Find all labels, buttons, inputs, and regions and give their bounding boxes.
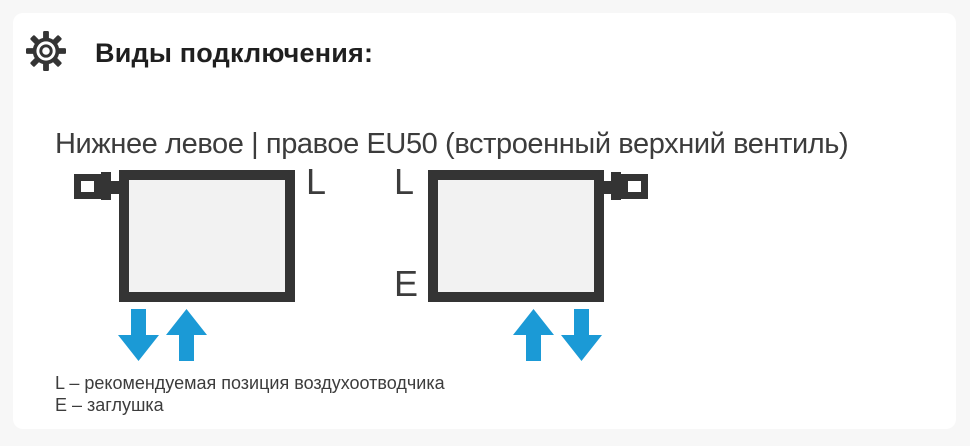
arrow-up-icon [513,309,554,361]
valve-cap [74,174,101,199]
valve-cap [621,174,648,199]
legend-line-air-vent: L – рекомендуемая позиция воздухоотводчи… [55,372,445,394]
legend: L – рекомендуемая позиция воздухоотводчи… [55,372,445,416]
plug-marker-right: E [394,266,418,302]
radiator-right [428,170,604,302]
legend-line-plug: E – заглушка [55,394,445,416]
air-vent-marker-right: L [394,164,414,200]
radiator-left [119,170,295,302]
valve-stem [611,172,621,200]
page-title: Виды подключения: [95,40,373,67]
gear-icon [26,30,66,72]
connection-subtitle: Нижнее левое | правое EU50 (встроенный в… [55,130,848,159]
valve-nipple [111,181,119,194]
arrow-down-icon [118,309,159,361]
air-vent-marker-left: L [306,164,326,200]
arrow-up-icon [166,309,207,361]
valve-stem [101,172,111,200]
arrow-down-icon [561,309,602,361]
connection-types-figure: Виды подключения: Нижнее левое | правое … [0,0,970,446]
valve-nipple [603,181,611,194]
